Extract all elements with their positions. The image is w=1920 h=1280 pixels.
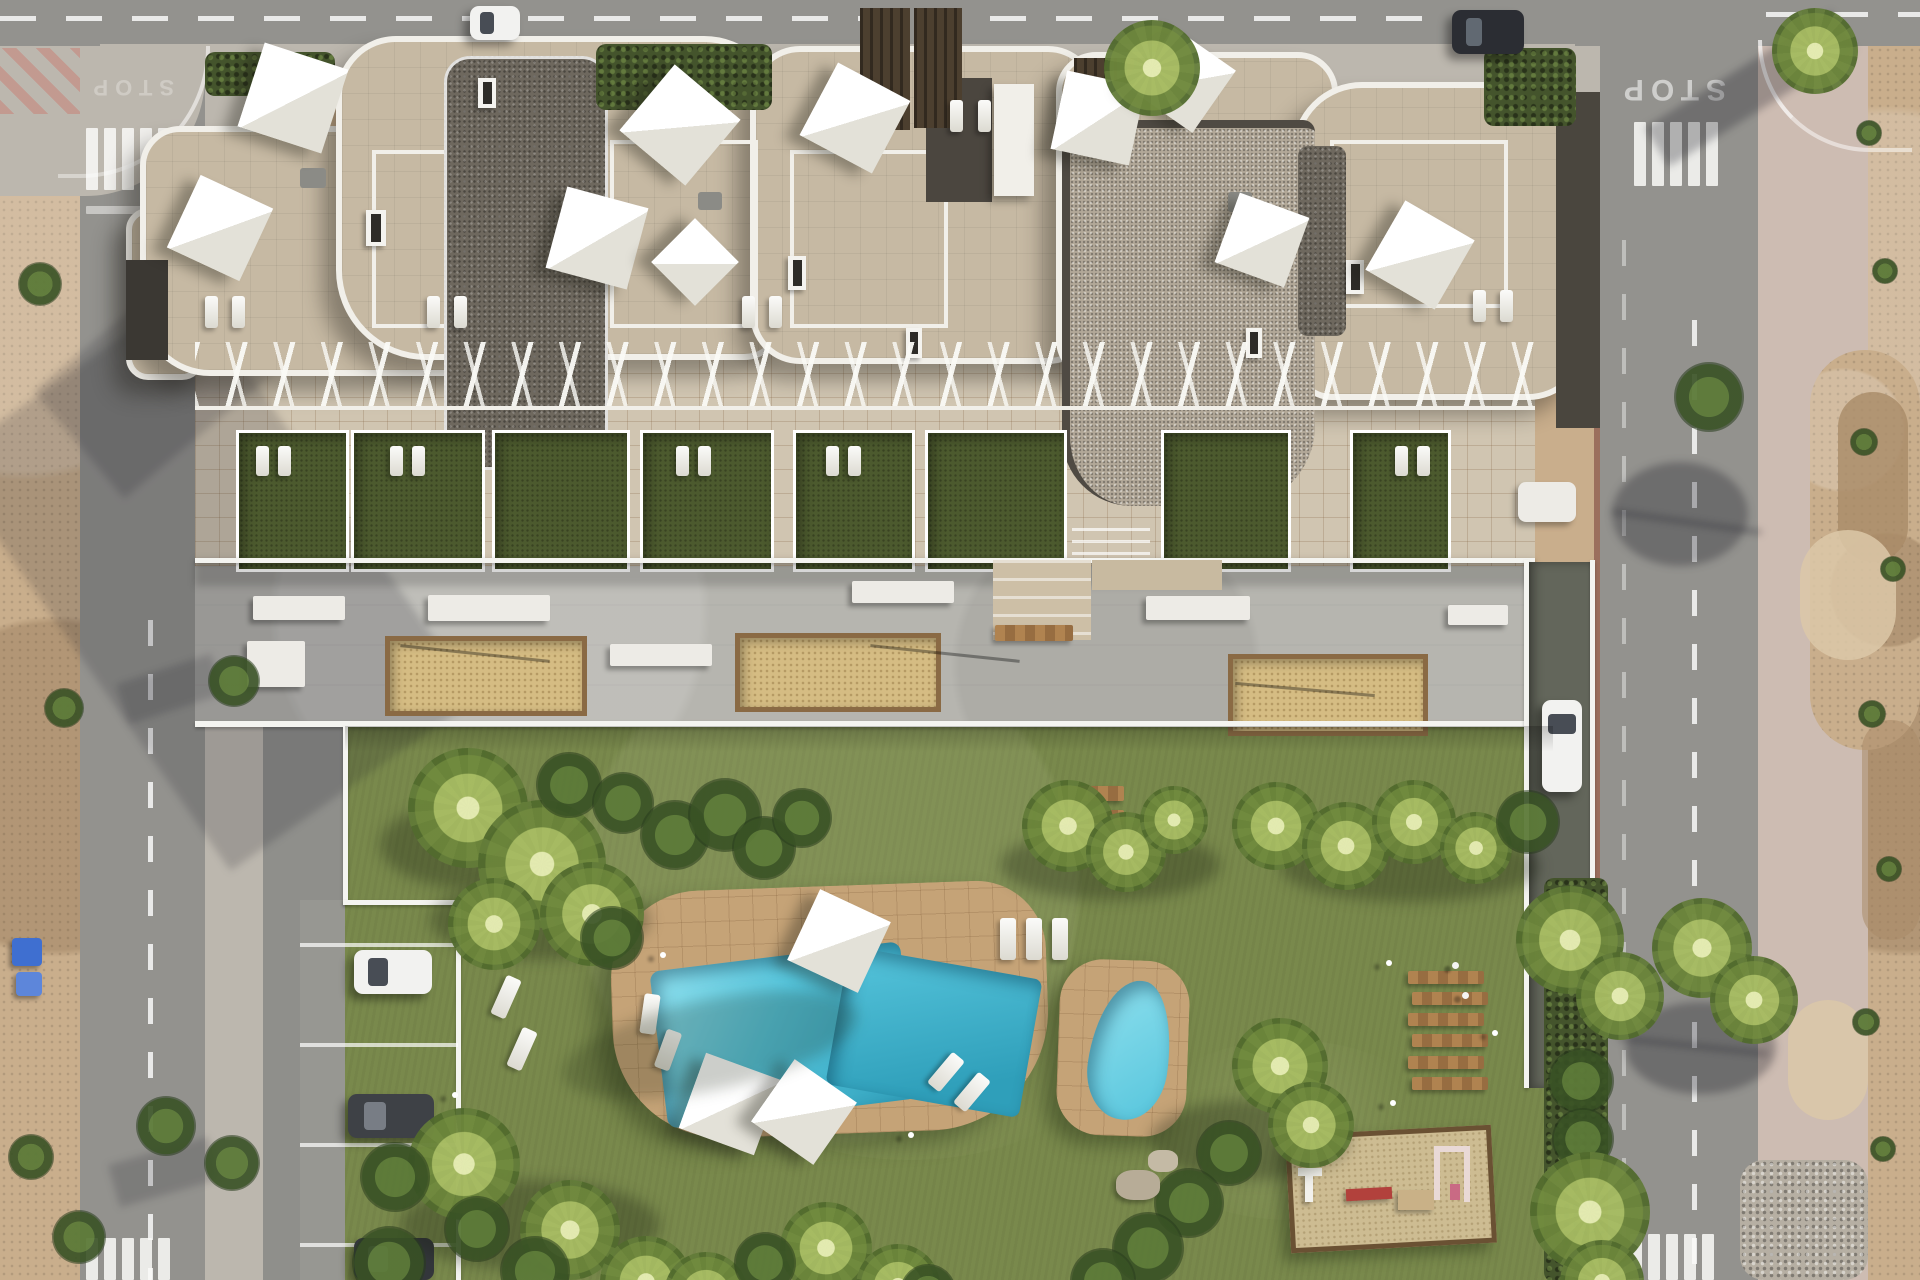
terrace-sofa bbox=[1518, 482, 1576, 522]
palm-tree bbox=[1104, 20, 1200, 116]
sun-deck-plank bbox=[1408, 971, 1484, 984]
car-on-top-road-dark bbox=[1452, 10, 1524, 54]
terrace-garden bbox=[925, 430, 1067, 572]
top-road-center-dashes bbox=[0, 16, 1430, 21]
street-tree bbox=[1674, 362, 1744, 432]
bush bbox=[580, 906, 644, 970]
plaza-bench bbox=[428, 595, 550, 621]
roof-vent bbox=[1346, 260, 1364, 294]
palm-tree bbox=[1772, 8, 1858, 94]
crosswalk-stripe bbox=[122, 1238, 134, 1280]
gym-seat-pink bbox=[1450, 1184, 1460, 1200]
dirt-shrub bbox=[8, 1134, 54, 1180]
roof-vent bbox=[366, 210, 386, 246]
roof-lounger bbox=[454, 296, 467, 328]
palm-tree bbox=[1576, 952, 1664, 1040]
dirt-shrub bbox=[44, 688, 84, 728]
rubble-pile bbox=[1740, 1160, 1868, 1280]
roof-chimney-white bbox=[994, 84, 1034, 196]
plaza-stair-landing bbox=[1092, 560, 1222, 590]
bollard-light bbox=[908, 1132, 914, 1138]
bush bbox=[1548, 1048, 1614, 1114]
bush bbox=[360, 1142, 430, 1212]
dirt-shrub bbox=[1850, 428, 1878, 456]
gravel-strip-right-wing bbox=[1298, 146, 1346, 336]
plaza-bench bbox=[1448, 605, 1508, 625]
plaza-bench bbox=[1146, 596, 1250, 620]
dirt-shrub bbox=[18, 262, 62, 306]
terrace-lounger bbox=[676, 446, 689, 476]
palm-tree bbox=[1710, 956, 1798, 1044]
parking-fence bbox=[343, 726, 348, 904]
plaza-bench bbox=[852, 581, 954, 603]
palm-tree bbox=[448, 878, 540, 970]
car-windshield bbox=[1466, 18, 1482, 46]
terrace-lounger bbox=[412, 446, 425, 476]
bollard-light bbox=[1492, 1030, 1498, 1036]
terrace-lounger bbox=[826, 446, 839, 476]
roof-table bbox=[698, 192, 722, 210]
dirt-shrub bbox=[1872, 258, 1898, 284]
aerial-render-scene: STOP STOP bbox=[0, 0, 1920, 1280]
sun-deck-plank bbox=[1408, 1013, 1484, 1026]
entrance-step bbox=[1072, 540, 1150, 543]
gym-bench-red bbox=[1346, 1187, 1393, 1201]
boulder bbox=[1148, 1150, 1178, 1172]
palm-tree bbox=[1140, 786, 1208, 854]
left-dirt-verge bbox=[0, 46, 80, 1280]
pool-lounger bbox=[1000, 918, 1016, 960]
car-on-top-road-white bbox=[470, 6, 520, 40]
roof-terrace-frame bbox=[790, 150, 948, 328]
bollard-light bbox=[660, 952, 666, 958]
parked-car-white bbox=[354, 950, 432, 994]
roof-lounger bbox=[950, 100, 963, 132]
dirt-shrub bbox=[1880, 556, 1906, 582]
entrance-step bbox=[1072, 528, 1150, 531]
roof-lounger bbox=[427, 296, 440, 328]
dark-wall-left bbox=[126, 260, 168, 360]
dirt-shrub bbox=[1858, 700, 1886, 728]
palm-tree bbox=[1268, 1082, 1354, 1168]
roof-lounger bbox=[232, 296, 245, 328]
dirt-light-patch bbox=[1800, 530, 1896, 660]
pool-lounger bbox=[1026, 918, 1042, 960]
crosswalk-stripe bbox=[1666, 1234, 1678, 1280]
pergola-truss-band bbox=[195, 342, 1535, 410]
parking-bay-line bbox=[300, 943, 458, 947]
roof-lounger bbox=[1500, 290, 1513, 322]
crosswalk-stripe bbox=[1684, 1234, 1696, 1280]
car-windshield bbox=[364, 1102, 386, 1130]
roof-table bbox=[300, 168, 326, 188]
terrace-lounger bbox=[698, 446, 711, 476]
gym-box-tan bbox=[1398, 1190, 1434, 1210]
crosswalk-stripe bbox=[1648, 1234, 1660, 1280]
pedestrian bbox=[1462, 992, 1469, 999]
street-tree bbox=[208, 655, 260, 707]
bush bbox=[772, 788, 832, 848]
sun-deck-plank bbox=[1412, 1034, 1488, 1047]
crosswalk-stripe bbox=[1702, 1234, 1714, 1280]
dirt-shrub bbox=[1856, 120, 1882, 146]
dirt-shrub bbox=[1852, 1008, 1880, 1036]
pedestrian bbox=[1452, 962, 1459, 969]
plaza-bench bbox=[610, 644, 712, 666]
gym-frame-post bbox=[1434, 1146, 1440, 1200]
terrace-garden bbox=[236, 430, 349, 572]
gym-frame-post bbox=[1464, 1148, 1470, 1202]
lawn-step-shadow bbox=[345, 726, 1553, 752]
right-road-edge-dashes bbox=[1622, 240, 1626, 1280]
dirt-dark-patch bbox=[1862, 720, 1920, 940]
terrace-lounger bbox=[848, 446, 861, 476]
dark-wall-right bbox=[1556, 92, 1600, 428]
crosswalk-stripe bbox=[104, 1238, 116, 1280]
dirt-shrub bbox=[136, 1096, 196, 1156]
terrace-lounger bbox=[256, 446, 269, 476]
roof-lounger bbox=[978, 100, 991, 132]
terrace-garden bbox=[1161, 430, 1291, 572]
roof-lounger bbox=[1473, 290, 1486, 322]
car-windshield bbox=[368, 958, 388, 986]
roof-vent bbox=[788, 256, 806, 290]
crosswalk-stripe bbox=[1634, 122, 1646, 186]
car-windshield bbox=[480, 12, 494, 34]
dirt-shrub bbox=[52, 1210, 106, 1264]
roof-lounger bbox=[742, 296, 755, 328]
bollard-light bbox=[1386, 960, 1392, 966]
terrace-lounger bbox=[390, 446, 403, 476]
plaza-bench bbox=[253, 596, 345, 620]
boulder bbox=[1116, 1170, 1160, 1200]
crosswalk-stripe bbox=[158, 1238, 170, 1280]
terrace-lounger bbox=[1417, 446, 1430, 476]
street-tree bbox=[204, 1135, 260, 1191]
dirt-shrub bbox=[1870, 1136, 1896, 1162]
terrace-garden bbox=[492, 430, 630, 572]
plaza-top-wall bbox=[195, 558, 1535, 563]
roof-lounger bbox=[205, 296, 218, 328]
terrace-lounger bbox=[1395, 446, 1408, 476]
recycling-bin-blue bbox=[12, 938, 42, 966]
pool-lounger bbox=[1052, 918, 1068, 960]
recycling-bin-blue bbox=[16, 972, 42, 996]
parking-bay-line bbox=[300, 1043, 458, 1047]
bush bbox=[444, 1196, 510, 1262]
bollard-light bbox=[452, 1092, 458, 1098]
sun-deck-plank bbox=[1412, 1077, 1488, 1090]
sun-deck-plank bbox=[1412, 992, 1488, 1005]
bush bbox=[1496, 790, 1560, 854]
gym-frame-bar bbox=[1434, 1146, 1470, 1152]
dirt-shrub bbox=[1876, 856, 1902, 882]
entrance-step bbox=[1072, 552, 1150, 555]
sun-deck-plank bbox=[1408, 1056, 1484, 1069]
terrace-lounger bbox=[278, 446, 291, 476]
bollard-light bbox=[1390, 1100, 1396, 1106]
sand-court bbox=[735, 633, 941, 712]
roof-vent bbox=[478, 78, 496, 108]
stair-wood-tread bbox=[995, 625, 1073, 641]
crosswalk-stripe bbox=[140, 1238, 152, 1280]
roof-lounger bbox=[769, 296, 782, 328]
street-hedge bbox=[1484, 48, 1576, 126]
